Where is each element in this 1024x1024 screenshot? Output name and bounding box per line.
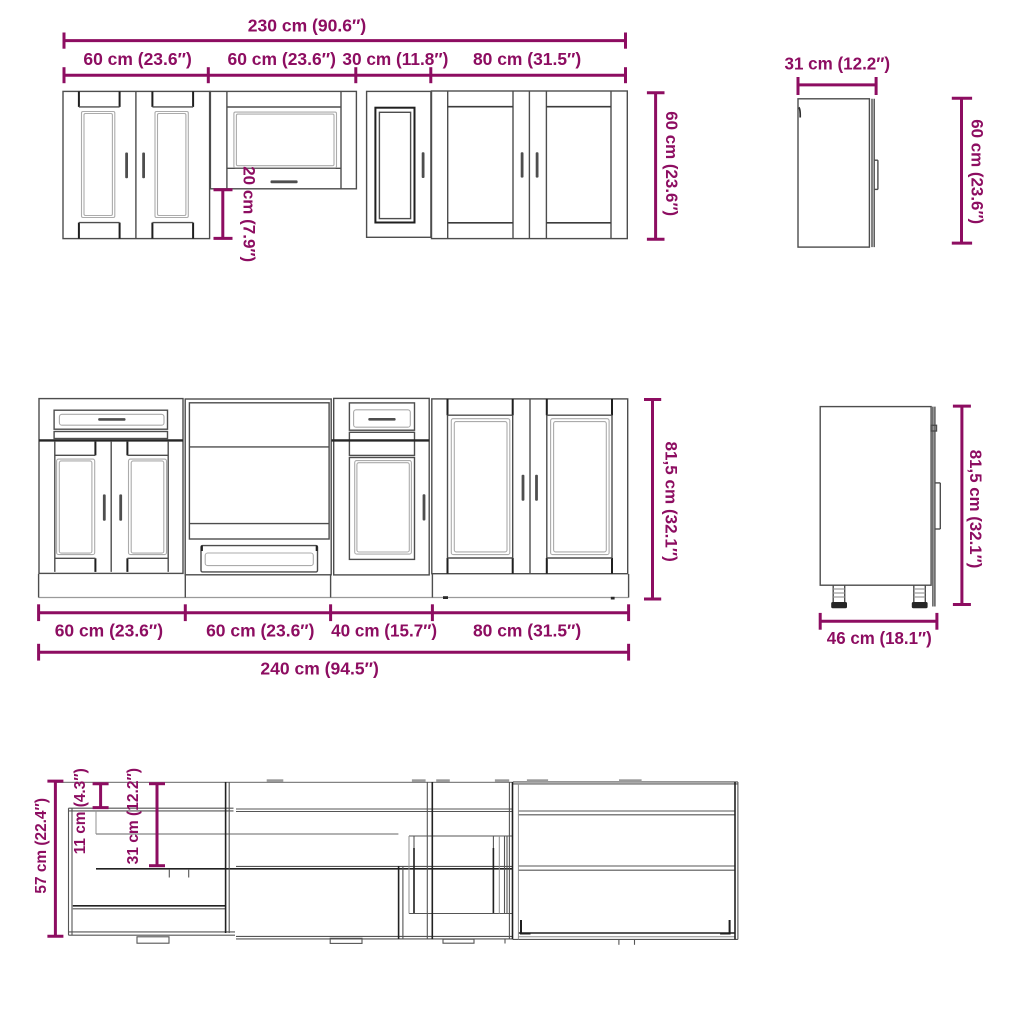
svg-text:46 cm (18.1″): 46 cm (18.1″) (827, 628, 932, 648)
svg-text:20 cm (7.9″): 20 cm (7.9″) (239, 166, 258, 262)
svg-text:81,5 cm (32.1″): 81,5 cm (32.1″) (966, 450, 985, 569)
svg-text:60 cm (23.6″): 60 cm (23.6″) (662, 111, 681, 216)
svg-text:60 cm (23.6″): 60 cm (23.6″) (83, 49, 191, 69)
svg-text:60 cm (23.6″): 60 cm (23.6″) (228, 49, 336, 69)
svg-text:80 cm (31.5″): 80 cm (31.5″) (473, 49, 581, 69)
svg-text:57 cm (22.4″): 57 cm (22.4″) (33, 798, 50, 894)
svg-text:60 cm (23.6″): 60 cm (23.6″) (55, 621, 163, 641)
svg-text:230 cm (90.6″): 230 cm (90.6″) (248, 16, 367, 36)
svg-text:240 cm (94.5″): 240 cm (94.5″) (260, 659, 379, 679)
svg-text:11 cm (4.3″): 11 cm (4.3″) (72, 768, 89, 854)
svg-text:31 cm (12.2″): 31 cm (12.2″) (785, 54, 891, 74)
svg-text:40 cm (15.7″): 40 cm (15.7″) (331, 621, 437, 641)
svg-text:30 cm (11.8″): 30 cm (11.8″) (342, 49, 448, 69)
svg-text:60 cm (23.6″): 60 cm (23.6″) (968, 119, 987, 224)
svg-text:80 cm (31.5″): 80 cm (31.5″) (473, 621, 581, 641)
svg-text:60 cm (23.6″): 60 cm (23.6″) (206, 621, 314, 641)
svg-text:31 cm (12.2″): 31 cm (12.2″) (125, 768, 142, 865)
svg-text:81,5 cm (32.1″): 81,5 cm (32.1″) (661, 442, 680, 562)
